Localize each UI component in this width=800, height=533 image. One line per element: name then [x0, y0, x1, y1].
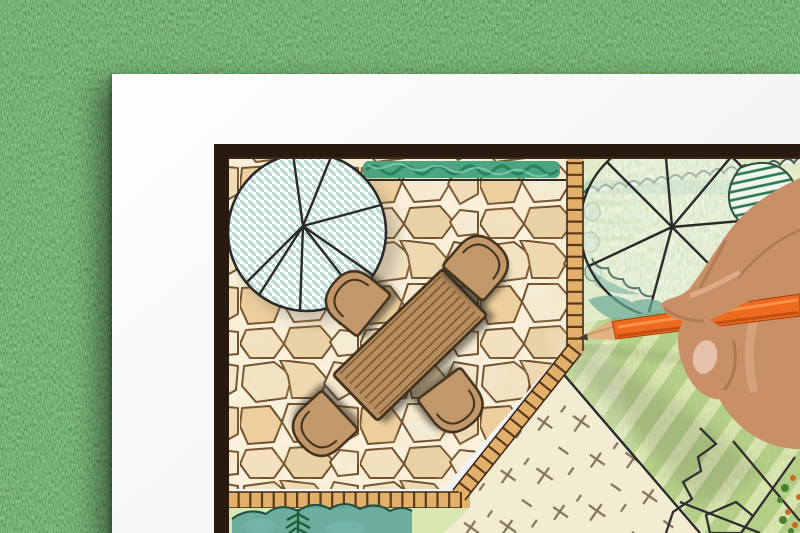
frame-top: [214, 144, 800, 159]
frame-inner-edge: [228, 157, 800, 159]
garden-plan-drawing: [0, 0, 800, 533]
bed-teal-patch: [244, 519, 276, 533]
photo-garden-plan-scene: [0, 0, 800, 533]
hedge: [363, 161, 566, 180]
planting-bed-bottom: [229, 504, 470, 533]
frame-left: [214, 144, 229, 533]
